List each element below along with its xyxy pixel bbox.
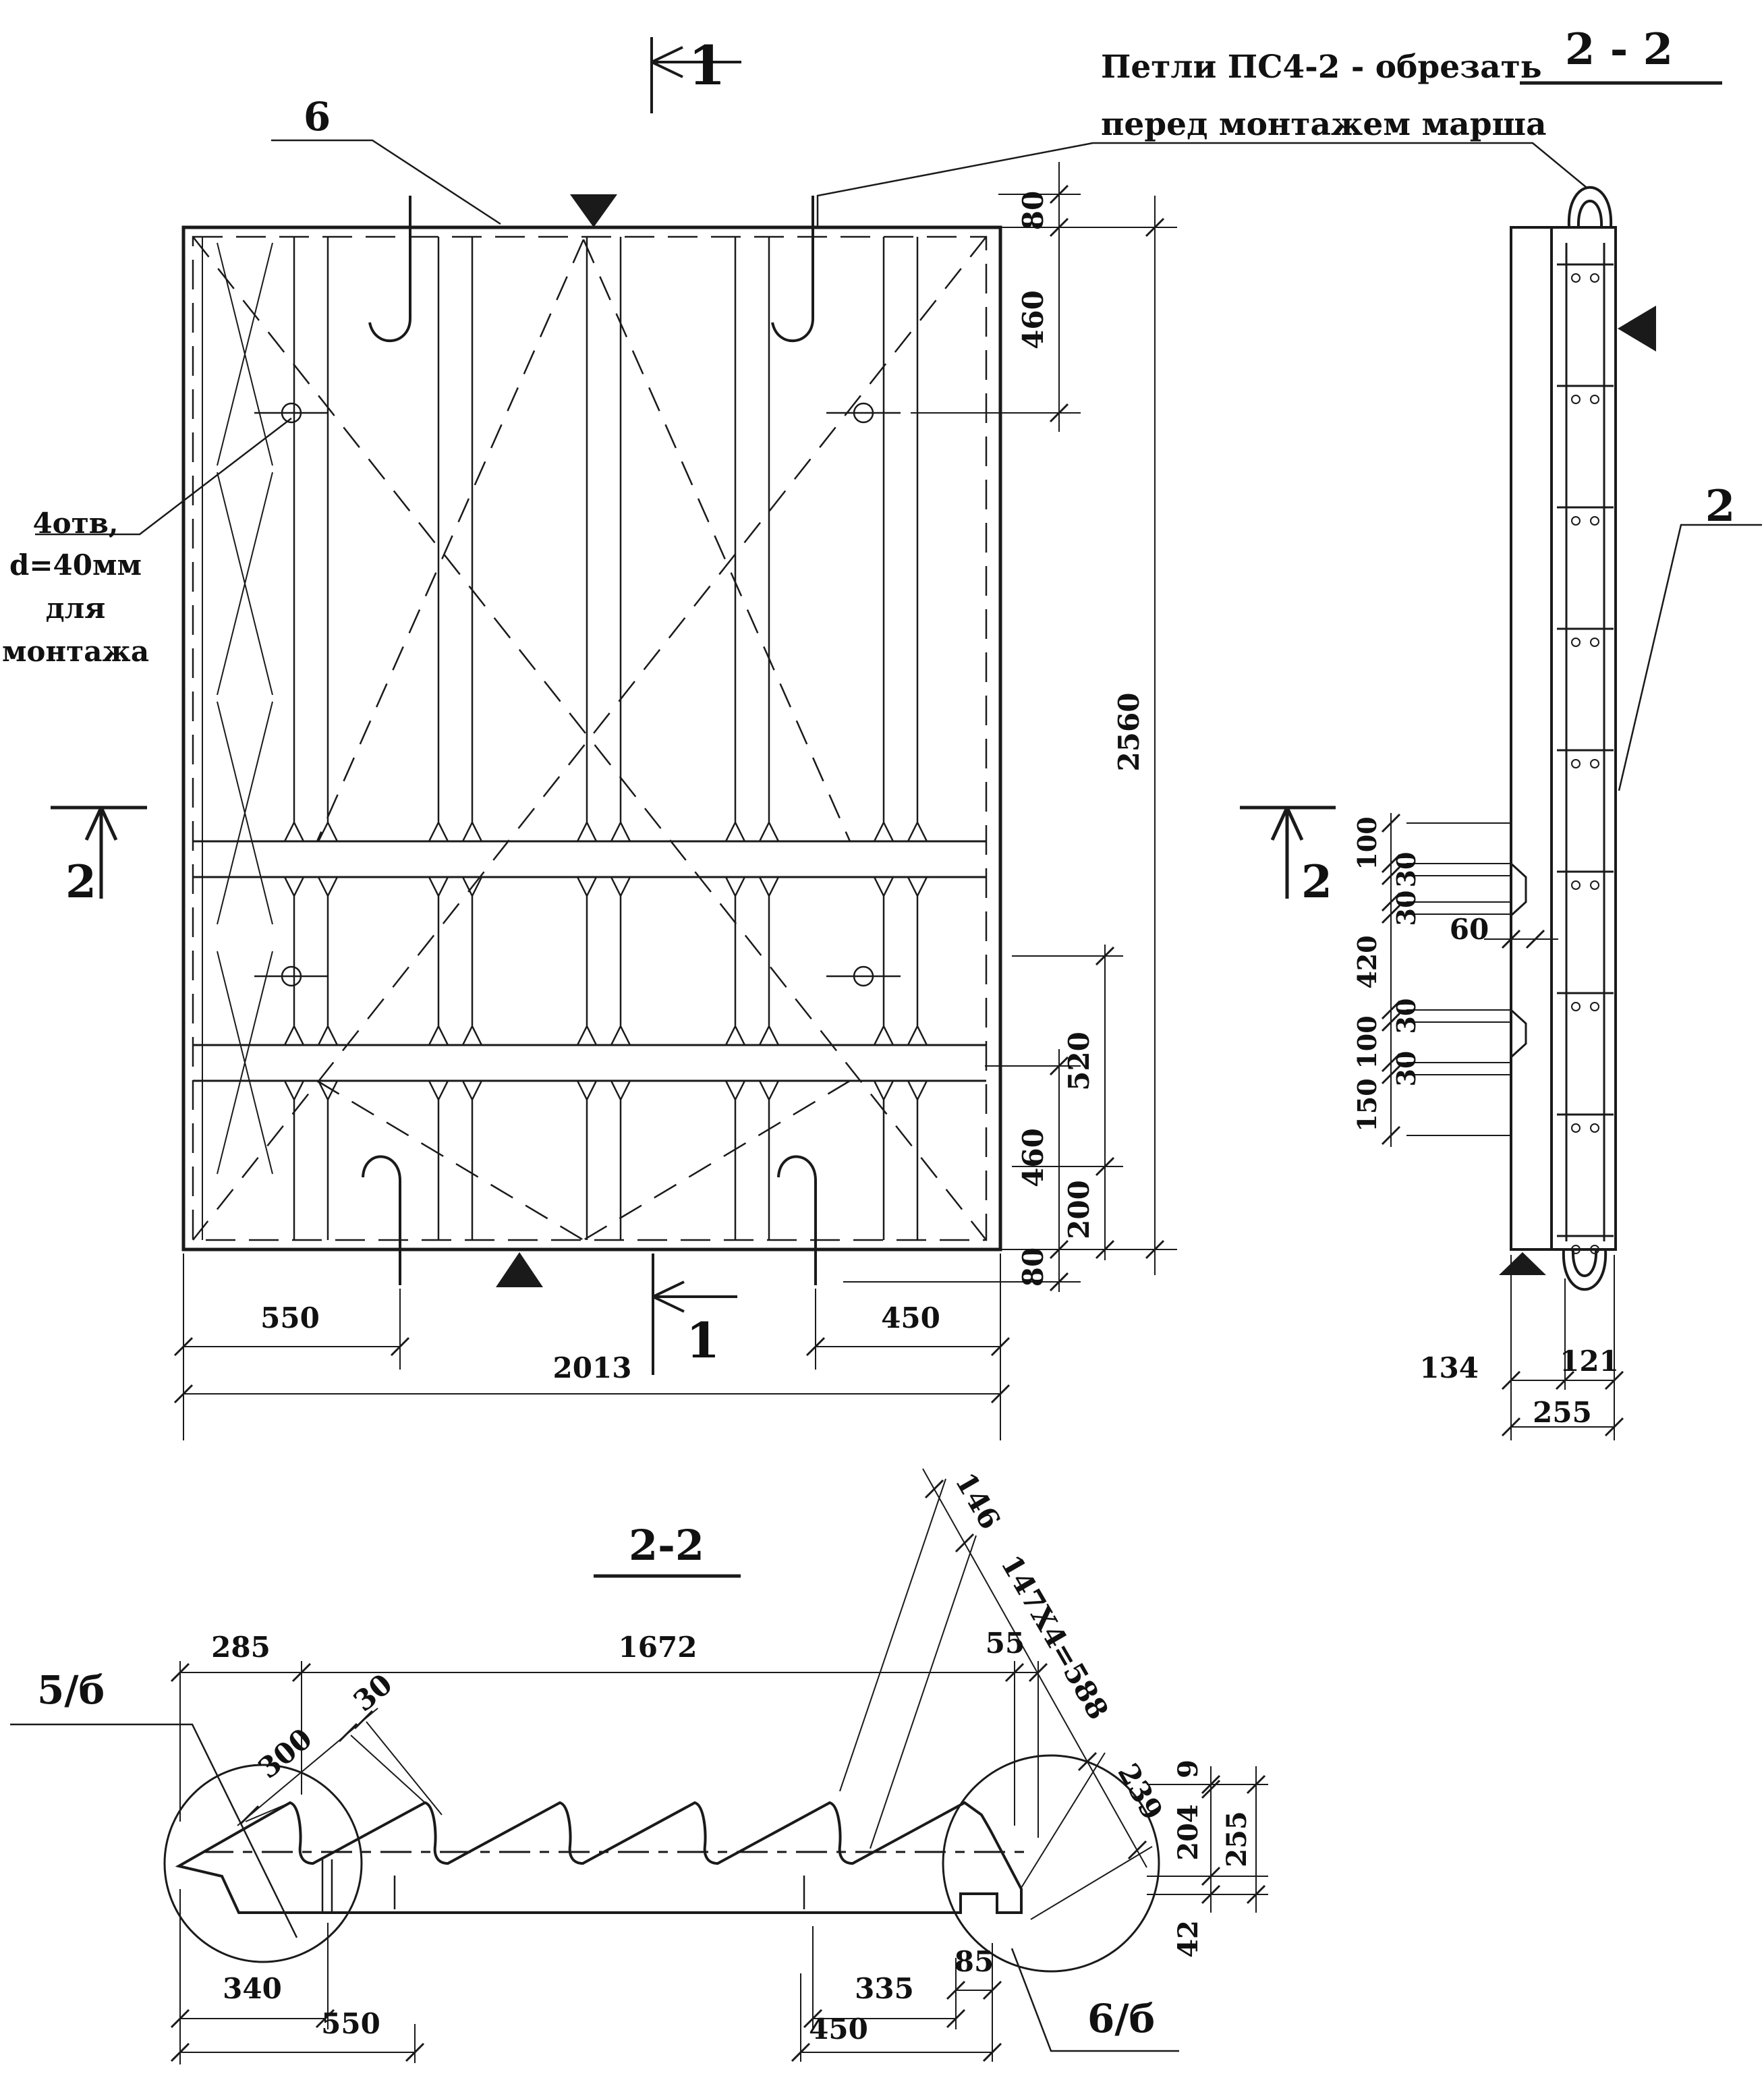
- dim-side-121: 121: [1560, 1345, 1619, 1378]
- dim-hook-top-80: 80: [1017, 191, 1050, 230]
- dim-550-bottom: 550: [321, 2007, 380, 2040]
- dim-side-150: 150: [1352, 1078, 1382, 1131]
- cage-hole: [1591, 1124, 1599, 1132]
- side-outline: [1511, 227, 1616, 1249]
- centering-mark-top: [570, 194, 617, 227]
- dim-239: 239: [1111, 1758, 1169, 1826]
- cage-hole: [1591, 1003, 1599, 1011]
- dim-520: 520: [1062, 1032, 1096, 1091]
- plan-edge-bracing: [202, 237, 273, 1240]
- dim-overall-2013: 2013: [553, 1351, 632, 1384]
- side-section-title: 2 - 2: [1565, 24, 1673, 75]
- dim-side-60: 60: [1450, 913, 1489, 946]
- lifting-loop-top-left: [370, 196, 410, 341]
- side-centering-mark-right: [1618, 306, 1656, 351]
- cage-hole: [1572, 638, 1580, 646]
- stair-profile-section: [165, 1469, 1268, 2064]
- dim-146: 146: [948, 1467, 1006, 1535]
- cage-hole: [1591, 881, 1599, 889]
- section-1-marker-bottom-label: 1: [686, 1312, 720, 1369]
- lifting-loop-top-right: [772, 196, 813, 341]
- stair-hidden-loop-lines: [322, 1859, 804, 1911]
- cage-hole: [1591, 274, 1599, 282]
- dim-side-420: 420: [1352, 935, 1382, 988]
- dim-side-100-top: 100: [1352, 816, 1382, 870]
- section-2-marker-right-label: 2: [1301, 855, 1332, 908]
- cage-hole: [1591, 760, 1599, 768]
- stair-profile-outline: [179, 1803, 1021, 1913]
- loops-note-line-1: Петли ПС4-2 - обрезать: [1101, 49, 1542, 86]
- cage-hole: [1572, 881, 1580, 889]
- dim-1672: 1672: [619, 1631, 698, 1664]
- dim-overall-2560: 2560: [1112, 693, 1145, 772]
- side-notches: [1511, 864, 1526, 1057]
- cage-hole: [1591, 395, 1599, 403]
- dim-side-30-a: 30: [1391, 852, 1421, 888]
- dim-450: 450: [881, 1301, 940, 1334]
- dim-204: 204: [1172, 1804, 1204, 1861]
- detail-5-label: 5/б: [37, 1667, 105, 1713]
- lifting-loop-bottom-left: [363, 1156, 400, 1285]
- plan-inner-dashed: [193, 237, 986, 1240]
- hole-centerlines: [254, 413, 901, 976]
- plan-step-bands: [193, 841, 986, 1081]
- holes-note-line-1: 4отв,: [32, 507, 118, 540]
- dim-side-30-d: 30: [1391, 1051, 1421, 1087]
- dim-low-460: 460: [1017, 1128, 1050, 1187]
- dim-285: 285: [211, 1631, 271, 1664]
- dim-side-30-c: 30: [1391, 998, 1421, 1034]
- plan-diagonal-braces-dashed: [193, 237, 986, 1240]
- dim-550: 550: [260, 1301, 320, 1334]
- reinforcement-cage: [1557, 243, 1614, 1254]
- dim-335: 335: [855, 1972, 914, 2005]
- cage-hole: [1572, 760, 1580, 768]
- dim-side-100-bottom: 100: [1352, 1015, 1382, 1069]
- dim-85: 85: [955, 1945, 994, 1978]
- dimension-labels: 16Петли ПС4-2 - обрезатьперед монтажем м…: [2, 24, 1735, 2046]
- callout-2-label: 2: [1705, 481, 1736, 532]
- side-centering-mark-bottom: [1499, 1252, 1546, 1275]
- dim-255-section: 255: [1221, 1811, 1253, 1867]
- holes-note-line-3: для: [46, 592, 106, 625]
- dim-side-255: 255: [1533, 1396, 1592, 1429]
- dim-hook-bottom-80: 80: [1017, 1247, 1050, 1287]
- dim-9: 9: [1172, 1760, 1204, 1778]
- cage-hole: [1591, 638, 1599, 646]
- cage-ladder-lines: [1557, 243, 1614, 1241]
- detail-5-leader: [10, 1724, 297, 1938]
- lifting-loop-bottom-right: [778, 1156, 816, 1285]
- loops-note-leader: [818, 143, 1587, 227]
- cage-hole: [1572, 274, 1580, 282]
- holes-note-line-4: монтажа: [2, 635, 149, 668]
- cage-hole: [1591, 517, 1599, 525]
- side-loop-bottom: [1564, 1249, 1605, 1289]
- dim-30-tread: 30: [347, 1667, 399, 1718]
- dim-200: 200: [1062, 1180, 1096, 1239]
- plan-bracing-lines: [202, 237, 273, 1240]
- stair-flight-drawing: 16Петли ПС4-2 - обрезатьперед монтажем м…: [0, 0, 1764, 2082]
- dim-340: 340: [223, 1972, 282, 2005]
- dim-side-30-b: 30: [1391, 891, 1421, 926]
- side-view: [1391, 188, 1656, 1440]
- dim-55: 55: [986, 1627, 1025, 1660]
- dim-42: 42: [1172, 1920, 1204, 1958]
- cage-hole: [1572, 1003, 1580, 1011]
- loops-note-line-2: перед монтажем марша: [1101, 106, 1547, 143]
- detail-6-label: 6/б: [1087, 1996, 1155, 2042]
- callout-6-leader: [271, 140, 501, 224]
- plan-rib-lines: [285, 237, 927, 1240]
- cage-hole: [1572, 517, 1580, 525]
- callout-6-label: 6: [304, 94, 331, 140]
- centering-mark-bottom: [496, 1252, 543, 1287]
- mounting-holes: [254, 403, 901, 986]
- cage-hole: [1572, 1124, 1580, 1132]
- cage-hole: [1572, 395, 1580, 403]
- stair-dim-lines: [180, 1469, 1268, 2064]
- plan-view: [183, 194, 1000, 1287]
- side-loop-top: [1569, 188, 1611, 227]
- bottom-section-title: 2-2: [629, 1521, 704, 1570]
- dim-450-bottom: 450: [809, 2013, 868, 2046]
- holes-note-line-2: d=40мм: [9, 548, 142, 582]
- section-1-marker-top-label: 1: [688, 34, 726, 97]
- dim-side-134: 134: [1419, 1351, 1479, 1384]
- section-2-marker-left-label: 2: [65, 855, 96, 908]
- callout-2-leader: [1619, 525, 1762, 791]
- drawing-sheet: 16Петли ПС4-2 - обрезатьперед монтажем м…: [0, 0, 1764, 2082]
- dim-top-460: 460: [1017, 290, 1050, 349]
- plan-ribs: [285, 237, 927, 1240]
